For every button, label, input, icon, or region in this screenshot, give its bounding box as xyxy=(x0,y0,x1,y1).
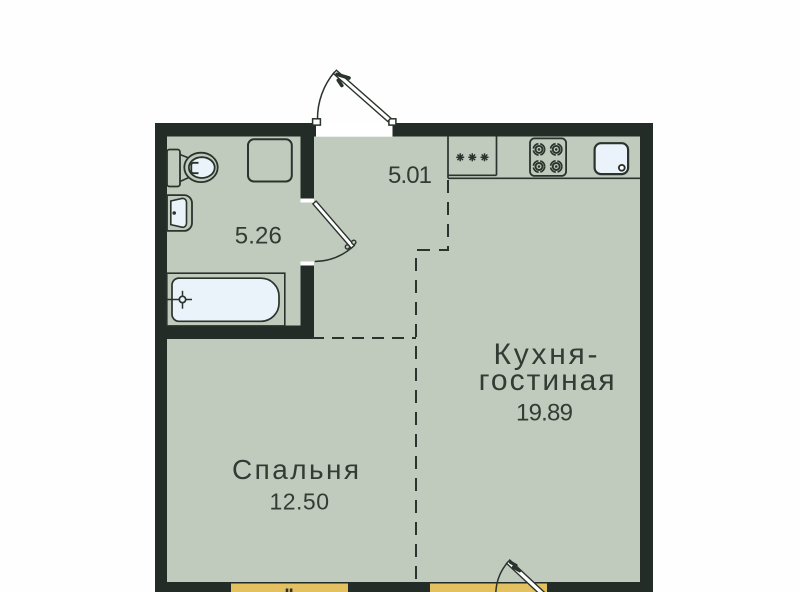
svg-text:Спальня: Спальня xyxy=(232,454,359,485)
svg-text:12.50: 12.50 xyxy=(270,488,330,514)
svg-text:гостиная: гостиная xyxy=(479,364,615,397)
svg-text:5.26: 5.26 xyxy=(235,223,282,250)
svg-text:19.89: 19.89 xyxy=(516,399,573,426)
svg-text:5.01: 5.01 xyxy=(388,162,432,189)
